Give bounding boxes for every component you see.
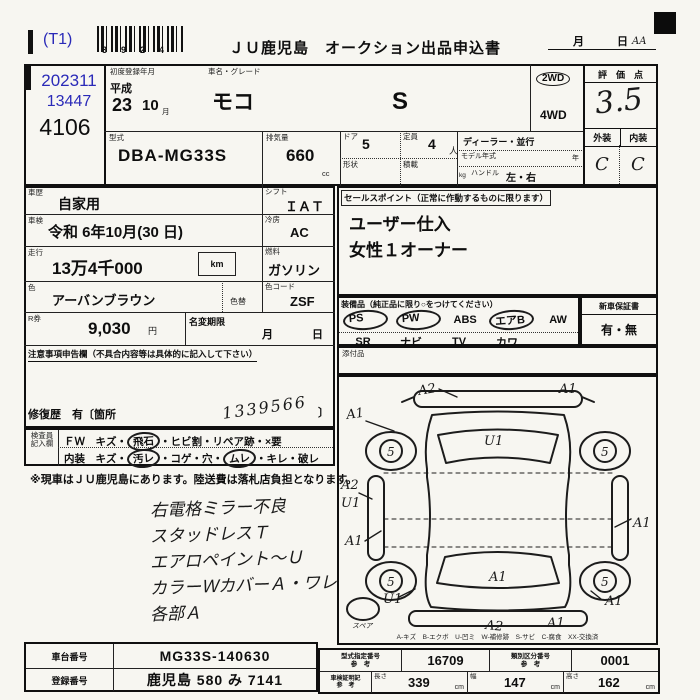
type-no-label-cell: 型式指定番号 参 考: [320, 650, 402, 671]
form-title: ＪＵ鹿児島 オークション出品申込書: [190, 37, 540, 58]
mark-bottom-center: A2: [484, 618, 504, 631]
equipment-label: 装備品（純正品に限り○をつけてください）: [341, 299, 498, 310]
disp-unit: cc: [322, 170, 330, 178]
height-cell: 高さ 162 cm: [564, 672, 658, 693]
auction-date: 202311: [34, 71, 104, 91]
color-code-border: [262, 281, 263, 312]
height-unit: cm: [646, 684, 655, 692]
mark-left-mid-b: U1: [341, 496, 360, 511]
diagram-box: A2 A1 A1 U1 A2 U1 A1 A1 U1 A1 A1 A2 A1 5…: [337, 375, 658, 645]
shift-value: ＩＡＴ: [285, 196, 324, 215]
doc-label-cell: 車検証明記 参 考: [320, 672, 372, 693]
chassis-label: 車台番号: [26, 644, 114, 668]
dealer-cell-border: [457, 131, 458, 186]
sales-point-2: 女性１オーナー: [349, 236, 468, 261]
lot-number: 4106: [30, 114, 100, 141]
note-line-5: 各部Ａ: [150, 596, 338, 629]
load-label: 積載: [403, 161, 418, 169]
nc-month: 月: [262, 326, 273, 342]
header-month-label: 月: [573, 33, 584, 49]
t1-code: (T1): [43, 31, 72, 49]
sales-points-box: セールスポイント（正常に作動するものに限ります） ユーザー仕入 女性１オーナー: [337, 186, 658, 296]
leader-left-upper: [366, 421, 394, 431]
inspector-box: 検査員 記入欄 ＦＷ キズ・飛石・ヒビ割・リペア跡・×要 内装 キズ・汚レ・コゲ…: [24, 428, 335, 466]
handle-label: ハンドル: [471, 170, 499, 178]
entry-number: 13447: [34, 93, 104, 111]
color-label: 色: [28, 284, 36, 292]
shape-label: 形状: [343, 161, 358, 169]
corner-block: [654, 12, 676, 34]
ac-value: AC: [290, 225, 309, 240]
spare-label: スペア: [352, 622, 374, 630]
inspector-label-cell: 検査員 記入欄: [26, 430, 59, 466]
mileage-label: 走行: [28, 249, 43, 257]
equipment-box: 装備品（純正品に限り○をつけてください） PS PW ABS エアB AW SR…: [337, 296, 580, 346]
repair-suffix: 〕: [318, 404, 329, 420]
class-no-value: 0001: [572, 650, 658, 671]
model-value: DBA-MG33S: [118, 146, 227, 166]
wd-cell-border: [530, 64, 531, 131]
left-side-rail: [368, 476, 384, 560]
bumper-wing-right: [582, 397, 594, 402]
chassis-row: 車台番号 MG33S-140630: [26, 644, 316, 669]
mark-left-mid-a: A2: [340, 478, 359, 493]
int-segment-3: ・キレ・破レ: [256, 453, 319, 465]
door-label: ドア: [343, 133, 358, 141]
warranty-value: 有・無: [582, 315, 656, 343]
location-notice: ※現車はＪＵ鹿児島にあります。陸送費は落札店負担となります。: [30, 471, 357, 487]
name-change-label: 名変期限: [189, 315, 225, 328]
wheel-mark-rl: 5: [387, 575, 395, 589]
inspection-row-line: [24, 214, 335, 215]
history-label: 車歴: [28, 189, 43, 197]
first-reg-label: 初度登録年月: [110, 68, 155, 76]
mark-rear-window: A1: [488, 570, 507, 585]
kg-unit: kg: [459, 172, 466, 179]
class-no-label: 類別区分番号: [511, 653, 550, 660]
model-label: 型式: [109, 134, 124, 142]
dealer-div2: [457, 166, 584, 167]
edge-mark: [28, 30, 33, 54]
mileage-row-line: [24, 246, 335, 247]
footer-right-table: 型式指定番号 参 考 16709 類別区分番号 参 考 0001 車検証明記 参…: [318, 648, 660, 694]
spare-tire-circle: [347, 598, 379, 620]
score-col-divider: [619, 145, 620, 184]
doc-label: 車検証明記: [330, 676, 360, 683]
doc-ref: 参 考: [336, 683, 354, 690]
era-value: 平成: [110, 80, 132, 96]
fuel-label: 燃料: [265, 248, 280, 256]
namechange-border: [185, 312, 186, 345]
ac-cell-border: [262, 214, 263, 246]
score-subheader: 外装 内装: [585, 128, 656, 147]
equipment-row-1: PS PW ABS エアB AW: [339, 310, 578, 330]
sales-point-1: ユーザー仕入: [349, 210, 451, 235]
wheel-mark-fl: 5: [387, 445, 395, 459]
disp-label: 排気量: [266, 134, 289, 142]
cap-label: 定員: [403, 133, 418, 141]
right-side-rail: [612, 476, 628, 560]
front-bumper: [414, 391, 582, 407]
width-unit: cm: [551, 684, 560, 692]
fuel-value: ガソリン: [268, 260, 320, 279]
mark-rear-left: U1: [383, 592, 402, 607]
type-class-row: 型式指定番号 参 考 16709 類別区分番号 参 考 0001: [320, 650, 658, 672]
dealer-label: ディーラー・並行: [463, 135, 534, 148]
nc-day: 日: [312, 326, 323, 342]
km-unit: km: [210, 259, 223, 269]
color-code-label: 色コード: [265, 283, 295, 291]
exterior-label: 外装: [585, 129, 621, 146]
height-value: 162: [598, 675, 620, 690]
sales-points-label: セールスポイント（正常に作動するものに限ります）: [341, 190, 551, 206]
wheel-mark-rr: 5: [601, 575, 609, 589]
registration-row: 登録番号 鹿児島 580 み 7141: [26, 669, 316, 691]
wheel-mark-fr: 5: [601, 445, 609, 459]
width-value: 147: [504, 675, 526, 690]
cap-col-divider: [400, 131, 401, 186]
int-circled-yogore: 汚レ: [126, 448, 160, 469]
dimensions-row: 車検証明記 参 考 長さ 339 cm 幅 147 cm 高さ 162 cm: [320, 672, 658, 693]
wd4-value: 4WD: [540, 108, 567, 122]
wd2-value: 2WD: [536, 72, 570, 86]
equip-airbag: エアB: [488, 308, 534, 331]
inspector-row2: 内装 キズ・汚レ・コゲ・穴・ムレ・キレ・破レ: [64, 449, 319, 468]
header-scribble: AA: [632, 36, 646, 47]
name-grade-label: 車名・グレード: [208, 68, 261, 76]
reg-month-unit: 月: [162, 108, 170, 116]
inspector-row-divider: [58, 447, 333, 448]
int-segment-2: ・コゲ・穴・: [160, 453, 223, 465]
auction-sheet: (T1) 3924 ＪＵ鹿児島 オークション出品申込書 月 日 AA 20231…: [0, 0, 700, 700]
notes-row-line: [24, 345, 335, 346]
repair-prefix: 修復歴 有〔箇所: [28, 406, 116, 422]
int-circled-mure: ムレ: [222, 448, 256, 469]
bumper-wing-left: [402, 397, 414, 402]
equip-ps: PS: [342, 308, 388, 331]
grade: S: [392, 88, 408, 116]
mark-top-left: A2: [416, 381, 437, 399]
disp-value: 660: [286, 146, 314, 166]
shift-label: シフト: [265, 188, 288, 196]
class-no-label-cell: 類別区分番号 参 考: [490, 650, 572, 671]
inspection-value: 令和 6年10月(30 日): [48, 221, 183, 242]
color-change-label: 色替: [230, 298, 246, 307]
inspection-label: 車検: [28, 217, 43, 225]
model-year-label: モデル年式: [461, 153, 496, 161]
mark-rear-right: A1: [604, 594, 623, 609]
rticket-value: 9,030: [88, 319, 131, 339]
vehicle-block: [104, 64, 658, 186]
footer-left-table: 車台番号 MG33S-140630 登録番号 鹿児島 580 み 7141: [24, 642, 318, 692]
length-value: 339: [408, 675, 430, 690]
car-name: モコ: [212, 86, 254, 116]
shape-row-divider: [340, 158, 457, 159]
attachments-label: 添付品: [342, 350, 365, 358]
mileage-value: 13万4千000: [52, 254, 143, 279]
leader-left-mid: [359, 493, 372, 499]
length-unit: cm: [455, 684, 464, 692]
chassis-value: MG33S-140630: [114, 644, 316, 668]
diagram-legend: A-キズ B-エクボ U-凹ミ W-補修跡 S-サビ C-腐食 XX-交換済: [339, 631, 656, 641]
equip-pw: PW: [395, 308, 441, 331]
equip-abs: ABS: [445, 310, 485, 330]
mark-top-right: A1: [558, 382, 577, 397]
model-year-unit: 年: [572, 155, 579, 163]
exterior-grade: C: [595, 154, 609, 175]
registration-label: 登録番号: [26, 669, 114, 691]
fuel-cell-border: [262, 246, 263, 281]
int-segment-1: 内装 キズ・: [64, 453, 127, 465]
mark-left-upper: A1: [344, 406, 365, 423]
score-box: 評 価 点 3.5 外装 内装 C C: [583, 64, 658, 186]
yen-unit: 円: [148, 327, 157, 337]
notes-header: 注意事項申告欄（不具合内容等は具体的に記入して下さい）: [28, 348, 257, 362]
type-no-value: 16709: [402, 650, 490, 671]
score-value: 3.5: [593, 82, 644, 122]
score-title: 評 価 点: [585, 66, 656, 83]
mark-windshield: U1: [484, 434, 503, 449]
id-box: 202311 13447 4106: [24, 64, 106, 186]
rticket-label: R券: [28, 315, 41, 323]
width-cell: 幅 147 cm: [468, 672, 564, 693]
cap-value: 4: [428, 136, 436, 152]
id-corner-mark: [24, 64, 31, 90]
interior-label: 内装: [621, 129, 657, 146]
width-label: 幅: [470, 673, 477, 680]
disp-cell-border: [262, 131, 263, 186]
mark-bottom-right: A1: [546, 616, 565, 631]
registration-value: 鹿児島 580 み 7141: [114, 669, 316, 691]
rticket-row-line: [24, 312, 335, 313]
color-change-divider: [222, 281, 223, 312]
length-cell: 長さ 339 cm: [372, 672, 468, 693]
header-day-label: 日: [617, 33, 628, 49]
color-value: アーバンブラウン: [52, 290, 155, 309]
mark-right-mid: A1: [632, 516, 651, 531]
date-underline: [548, 49, 656, 50]
history-value: 自家用: [58, 194, 100, 214]
class-no-ref: 参 考: [521, 661, 541, 668]
door-value: 5: [362, 136, 370, 152]
reg-year: 23: [112, 95, 132, 116]
km-cell: km: [198, 252, 236, 276]
handwritten-notes: 右電格ミラー不良 スタッドレスＴ エアロペイント〜Ｕ カラーＷカバーＡ・ワレ 各…: [150, 495, 337, 625]
type-no-ref: 参 考: [351, 661, 371, 668]
inspector-label-2: 記入欄: [26, 440, 58, 448]
mark-left-lower: A1: [344, 534, 363, 549]
equip-aw: AW: [538, 310, 578, 330]
shift-cell-border: [262, 186, 263, 214]
dealer-div1: [457, 150, 584, 151]
color-code-value: ZSF: [290, 294, 315, 309]
height-label: 高さ: [566, 673, 579, 680]
attachments-box: 添付品: [337, 346, 658, 375]
interior-grade: C: [631, 154, 645, 175]
reg-month: 10: [142, 97, 159, 114]
equipment-grid: PS PW ABS エアB AW SR ナビ TV カワ: [339, 310, 578, 350]
car-diagram: A2 A1 A1 U1 A2 U1 A1 A1 U1 A1 A1 A2 A1 5…: [339, 381, 656, 631]
warranty-box: 新車保証書 有・無: [580, 296, 658, 346]
length-label: 長さ: [374, 673, 387, 680]
barcode-digits: 3924: [102, 45, 178, 55]
type-no-label: 型式指定番号: [341, 653, 380, 660]
handle-value: 左・右: [506, 169, 536, 184]
warranty-label: 新車保証書: [582, 298, 656, 315]
ac-label: 冷房: [265, 216, 280, 224]
